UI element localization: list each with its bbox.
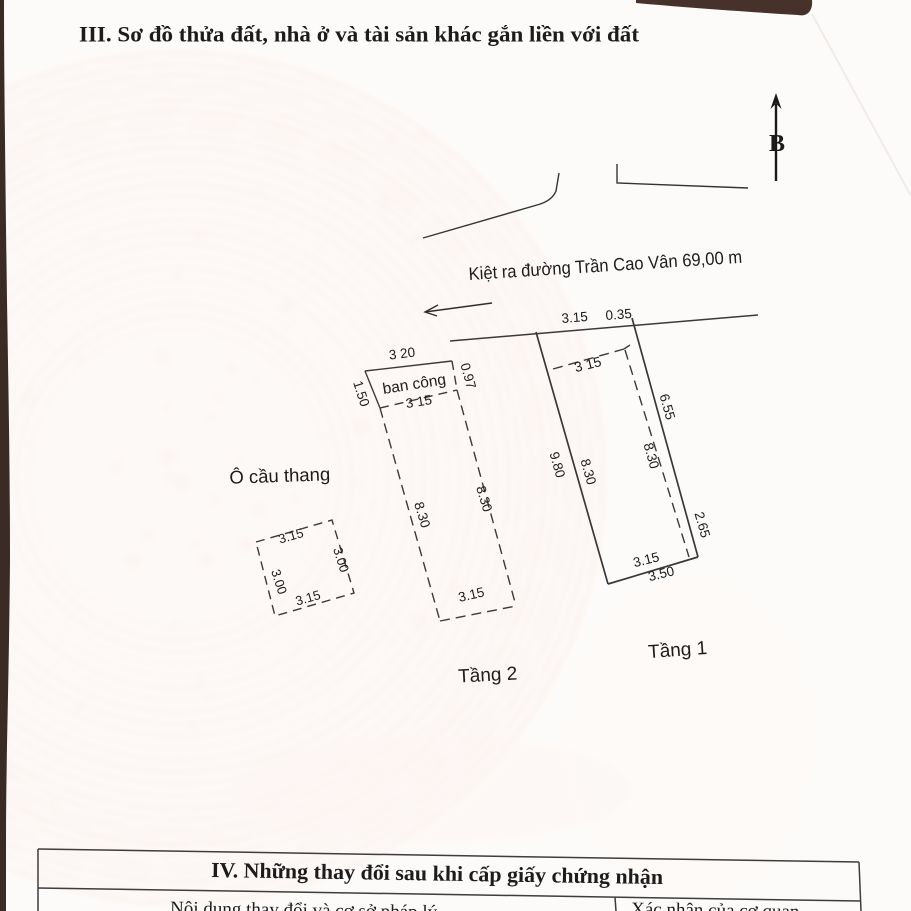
svg-text:3 20: 3 20 bbox=[388, 345, 416, 363]
svg-text:Xác nhận của cơ quan: Xác nhận của cơ quan bbox=[631, 899, 800, 911]
svg-text:B: B bbox=[769, 131, 785, 157]
svg-text:III. Sơ đồ thửa đất, nhà ở và: III. Sơ đồ thửa đất, nhà ở và tài sản kh… bbox=[79, 22, 640, 47]
svg-text:0.35: 0.35 bbox=[605, 306, 632, 323]
svg-text:Ô cầu thang: Ô cầu thang bbox=[229, 463, 330, 488]
svg-text:Tầng 2: Tầng 2 bbox=[458, 663, 518, 687]
svg-text:3.15: 3.15 bbox=[561, 309, 588, 326]
svg-text:Tầng 1: Tầng 1 bbox=[647, 638, 707, 663]
